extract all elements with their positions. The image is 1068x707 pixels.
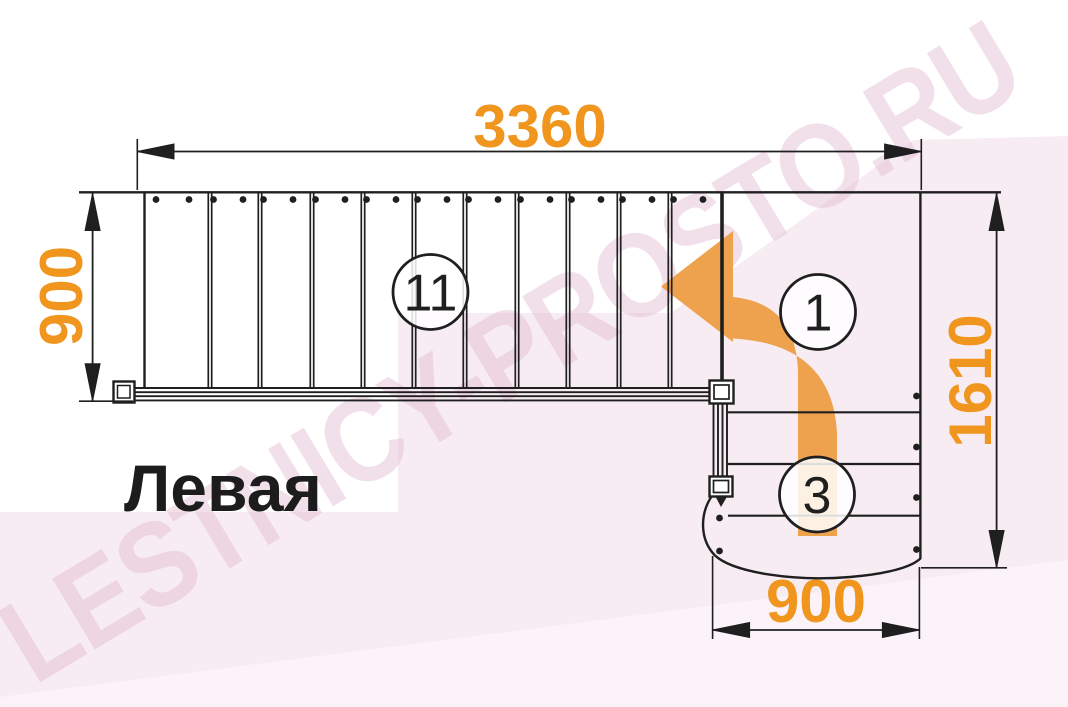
lower-steps-number: 3 xyxy=(803,467,832,525)
baluster-dot xyxy=(290,196,297,203)
left-rail-post xyxy=(114,382,135,403)
staircase-plan-diagram: LESTNICY-PROSTO.RU xyxy=(0,0,1068,707)
staircase-plan-svg: LESTNICY-PROSTO.RU xyxy=(0,0,1068,707)
baluster-dot xyxy=(414,196,421,203)
baluster-dot xyxy=(444,196,451,203)
baluster-dot xyxy=(260,196,267,203)
baluster-dot xyxy=(670,196,677,203)
step-dot xyxy=(716,515,723,522)
step-dot xyxy=(913,494,920,501)
baluster-dot xyxy=(363,196,370,203)
baluster-dot xyxy=(495,196,502,203)
baluster-dot xyxy=(598,196,605,203)
step-dot xyxy=(913,546,920,553)
baluster-dot xyxy=(240,196,247,203)
turn-step-number: 1 xyxy=(804,285,833,343)
corner-newel-post xyxy=(710,381,734,404)
baluster-dot xyxy=(517,196,524,203)
baluster-dot xyxy=(700,196,707,203)
dimension-value-upper-width: 900 xyxy=(28,246,95,346)
arrowhead-down xyxy=(85,364,100,401)
baluster-dot xyxy=(619,196,626,203)
baluster-dot xyxy=(465,196,472,203)
staircase-type-label: Левая xyxy=(124,451,322,525)
baluster-dot xyxy=(153,196,160,203)
step-dot xyxy=(716,548,723,555)
baluster-dot xyxy=(312,196,319,203)
step-dot xyxy=(913,444,920,451)
arrowhead-left xyxy=(137,144,174,159)
upper-steps-number: 11 xyxy=(404,265,458,323)
baluster-dot xyxy=(568,196,575,203)
baluster-dot xyxy=(210,196,217,203)
arrowhead-up xyxy=(85,194,100,231)
dimension-value-total-depth: 1610 xyxy=(937,314,1004,447)
baluster-dot xyxy=(547,196,554,203)
baluster-dot xyxy=(186,196,193,203)
baluster-dot xyxy=(393,196,400,203)
baluster-dot xyxy=(342,196,349,203)
baluster-dot xyxy=(649,196,656,203)
dimension-value-lower-width: 900 xyxy=(766,568,866,635)
dimension-value-total-length: 3360 xyxy=(473,93,606,160)
step-dot xyxy=(913,393,920,400)
